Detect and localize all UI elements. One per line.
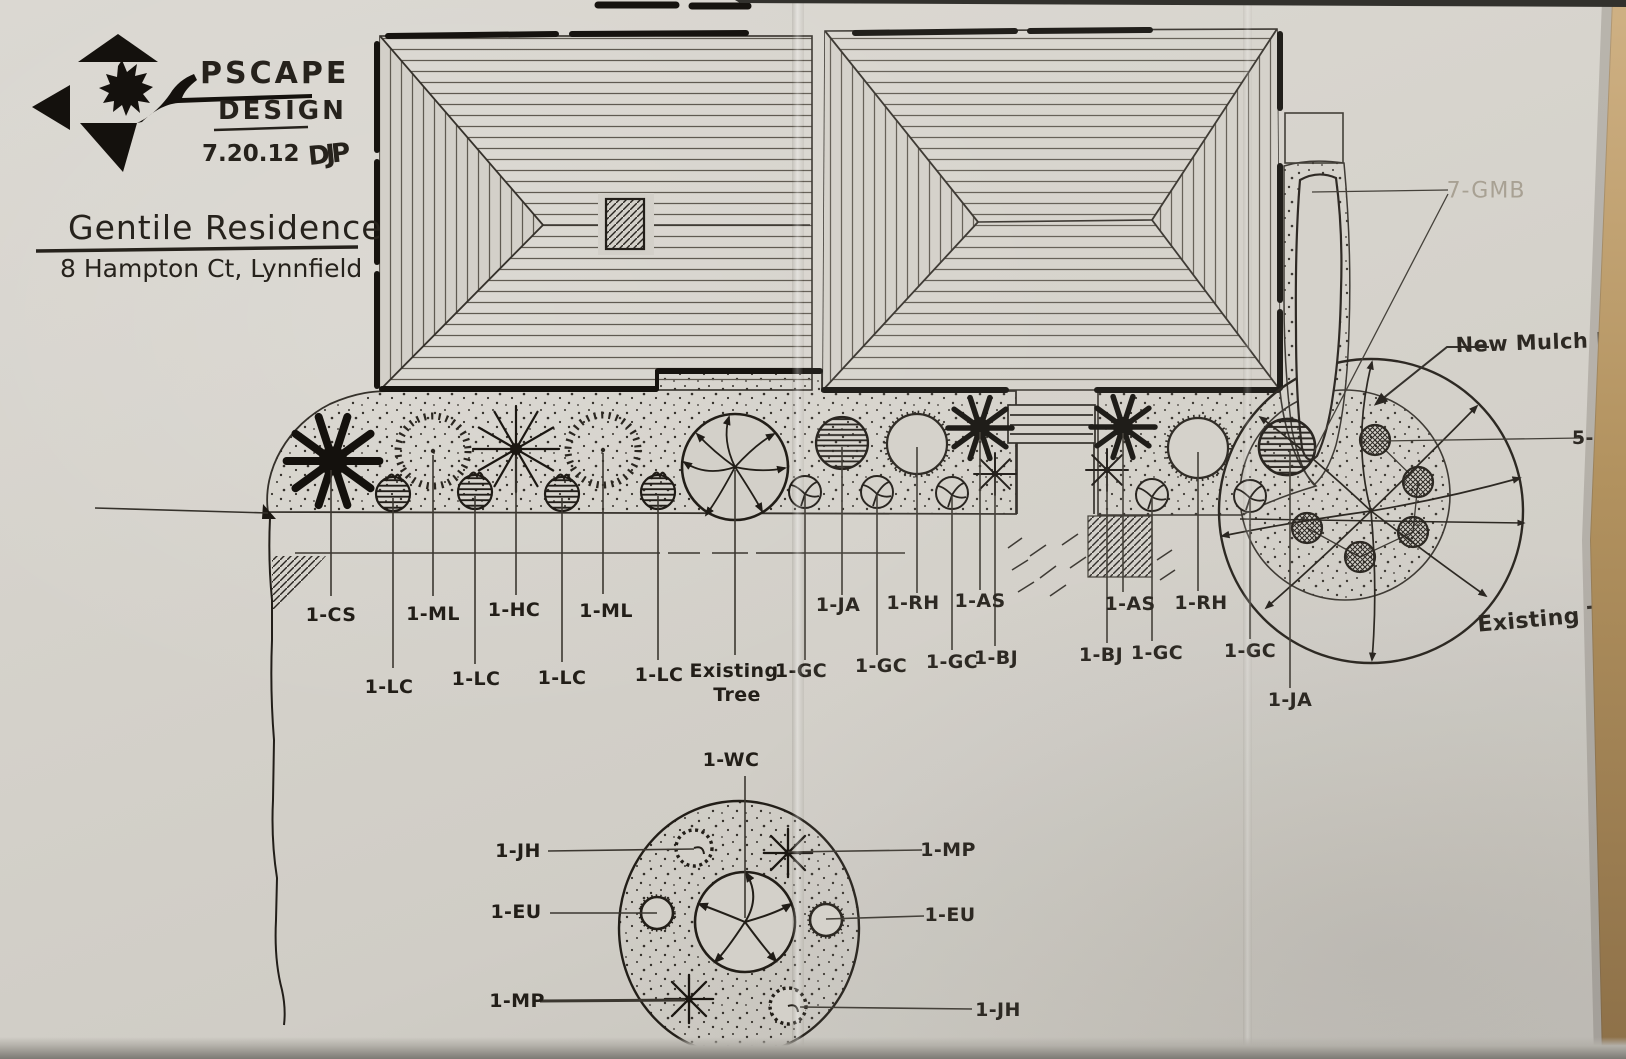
label-gc-1: 1-GC [775,660,827,682]
label-lc-4: 1-LC [635,664,684,686]
landscape-plan-photo: PSCAPE DESIGN 7.20.12 DJP Gentile Reside… [0,0,1626,1059]
label-eu-right: 1-EU [924,904,975,926]
designer-initials: DJP [306,138,347,172]
label-lc-1: 1-LC [365,676,414,698]
project-title: Gentile Residence [68,208,383,247]
label-gmb: 7-GMB [1447,179,1526,204]
label-ml-1: 1-ML [406,603,460,625]
date-line: 7.20.12 DJP [202,138,346,168]
label-existing-tree-left-line2: Tree [713,684,761,706]
label-cs: 1-CS [306,604,357,626]
label-existing-tree-right: Existing Tree [1476,598,1626,637]
label-ml-2: 1-ML [579,600,633,622]
label-gc-2: 1-GC [855,655,907,677]
label-hc: 1-HC [488,599,541,621]
label-gc-5: 1-GC [1224,640,1276,662]
label-new-mulch-bed: New Mulch Bed [1455,327,1626,358]
label-ja-2: 1-JA [1268,689,1312,711]
label-gc-3: 1-GC [926,651,978,673]
label-as-1: 1-AS [954,590,1005,612]
label-rh-1: 1-RH [886,592,939,614]
label-wc: 1-WC [703,749,760,771]
label-as-2: 1-AS [1104,593,1155,615]
label-lc-2: 1-LC [452,668,501,690]
label-jh-left: 1-JH [495,840,541,862]
plan-date: 7.20.12 [202,141,300,167]
firm-name-line2: DESIGN [218,96,347,126]
label-lc-3: 1-LC [538,667,587,689]
label-hs: 5-HS [1572,427,1624,449]
label-bj-2: 1-BJ [1079,644,1123,666]
label-bj-1: 1-BJ [974,647,1018,669]
label-ja-1: 1-JA [816,594,860,616]
label-mp-right: 1-MP [920,839,976,861]
label-rh-2: 1-RH [1174,592,1227,614]
firm-name-line1: PSCAPE [200,56,349,91]
label-gc-4: 1-GC [1131,642,1183,664]
project-address: 8 Hampton Ct, Lynnfield [60,254,362,283]
label-existing-tree-left-line1: Existing [690,660,779,682]
label-mp-left: 1-MP [489,990,545,1012]
label-eu-left: 1-EU [490,901,541,923]
label-jh-right: 1-JH [975,999,1021,1021]
